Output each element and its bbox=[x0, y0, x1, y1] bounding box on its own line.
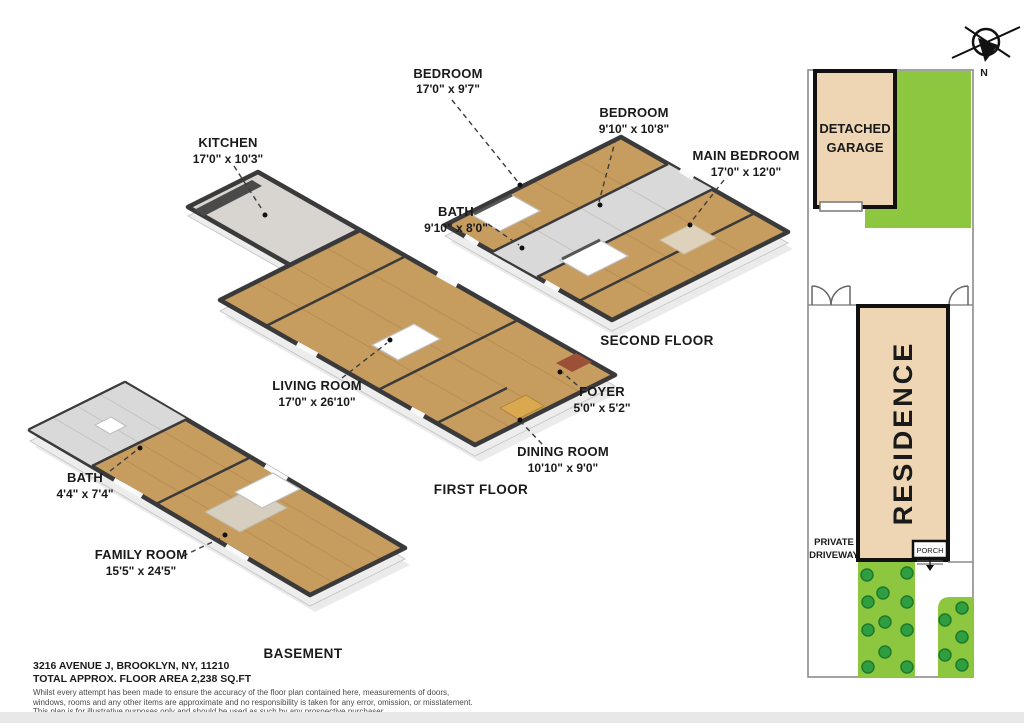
bush-icon bbox=[939, 649, 951, 661]
room-dims-basement-bath: 4'4" x 7'4" bbox=[56, 487, 113, 501]
gate-left-leaf-1 bbox=[812, 286, 831, 305]
driveway-label-line1: PRIVATE bbox=[814, 537, 854, 548]
bush-icon bbox=[901, 567, 913, 579]
bush-icon bbox=[901, 596, 913, 608]
room-dims-dining-room: 10'10" x 9'0" bbox=[528, 461, 598, 475]
second-floor-title: SECOND FLOOR bbox=[600, 333, 714, 348]
first-floor-title: FIRST FLOOR bbox=[434, 482, 528, 497]
room-label-basement-bath: BATH bbox=[67, 470, 103, 485]
garage-label-line1: DETACHED bbox=[819, 121, 890, 136]
room-dims-bath-2f: 9'10" x 8'0" bbox=[424, 221, 488, 235]
bush-icon bbox=[877, 587, 889, 599]
room-dims-bedroom-2: 9'10" x 10'8" bbox=[599, 122, 669, 136]
room-label-dining-room: DINING ROOM bbox=[517, 444, 609, 459]
driveway-label-line2: DRIVEWAY bbox=[809, 550, 859, 561]
room-dims-family-room: 15'5" x 24'5" bbox=[106, 564, 176, 578]
basement-plan: BATH 4'4" x 7'4" FAMILY ROOM 15'5" x 24'… bbox=[30, 383, 410, 661]
bush-icon bbox=[956, 631, 968, 643]
bush-icon bbox=[862, 661, 874, 673]
disclaimer-line-2: windows, rooms and any other items are a… bbox=[32, 698, 473, 707]
disclaimer-line-1: Whilst every attempt has been made to en… bbox=[33, 688, 449, 697]
leader-dot bbox=[688, 223, 693, 228]
room-dims-bedroom-1: 17'0" x 9'7" bbox=[416, 82, 480, 96]
room-dims-foyer: 5'0" x 5'2" bbox=[573, 401, 630, 415]
bush-icon bbox=[862, 596, 874, 608]
porch-label: PORCH bbox=[916, 546, 943, 555]
gate-right bbox=[949, 286, 968, 305]
leader-dot bbox=[598, 203, 603, 208]
room-dims-main-bedroom: 17'0" x 12'0" bbox=[711, 165, 781, 179]
bush-icon bbox=[939, 614, 951, 626]
area-text: TOTAL APPROX. FLOOR AREA 2,238 SQ.FT bbox=[33, 673, 252, 685]
bush-icon bbox=[901, 661, 913, 673]
leader-dot bbox=[223, 533, 228, 538]
room-label-bedroom-2: BEDROOM bbox=[599, 105, 668, 120]
bush-icon bbox=[901, 624, 913, 636]
garage-label-line2: GARAGE bbox=[826, 140, 883, 155]
north-label: N bbox=[980, 67, 988, 79]
garage-shape bbox=[815, 71, 895, 207]
leader-dot bbox=[558, 370, 563, 375]
room-label-main-bedroom: MAIN BEDROOM bbox=[692, 148, 799, 163]
bush-icon bbox=[956, 602, 968, 614]
basement-title: BASEMENT bbox=[264, 646, 343, 661]
gate-left-leaf-2 bbox=[831, 286, 850, 305]
leader-dot bbox=[518, 418, 523, 423]
room-label-kitchen: KITCHEN bbox=[198, 135, 257, 150]
site-plan: DETACHED GARAGE RESIDENCE PORCH PRIVATE … bbox=[808, 27, 1020, 677]
bush-icon bbox=[956, 659, 968, 671]
leader-dot bbox=[388, 338, 393, 343]
leader-dot bbox=[138, 446, 143, 451]
floor-plan-svg: BATH 4'4" x 7'4" FAMILY ROOM 15'5" x 24'… bbox=[0, 0, 1024, 723]
room-dims-kitchen: 17'0" x 10'3" bbox=[193, 152, 263, 166]
room-label-family-room: FAMILY ROOM bbox=[95, 547, 188, 562]
room-label-living-room: LIVING ROOM bbox=[272, 378, 362, 393]
floor-plan-page: BATH 4'4" x 7'4" FAMILY ROOM 15'5" x 24'… bbox=[0, 0, 1024, 723]
room-dims-living-room: 17'0" x 26'10" bbox=[278, 395, 355, 409]
garage-door bbox=[820, 202, 862, 211]
bush-icon bbox=[879, 646, 891, 658]
bottom-bar bbox=[0, 712, 1024, 723]
room-label-foyer: FOYER bbox=[579, 384, 625, 399]
leader-dot bbox=[520, 246, 525, 251]
leader-dot bbox=[263, 213, 268, 218]
residence-label: RESIDENCE bbox=[888, 341, 918, 526]
leader-line bbox=[452, 100, 518, 182]
porch-arrowhead bbox=[926, 565, 934, 571]
room-label-bath-2f: BATH bbox=[438, 204, 474, 219]
bush-icon bbox=[862, 624, 874, 636]
bush-icon bbox=[879, 616, 891, 628]
room-label-bedroom-1: BEDROOM bbox=[413, 66, 482, 81]
address-text: 3216 AVENUE J, BROOKLYN, NY, 11210 bbox=[33, 660, 229, 672]
bush-icon bbox=[861, 569, 873, 581]
leader-dot bbox=[518, 183, 523, 188]
